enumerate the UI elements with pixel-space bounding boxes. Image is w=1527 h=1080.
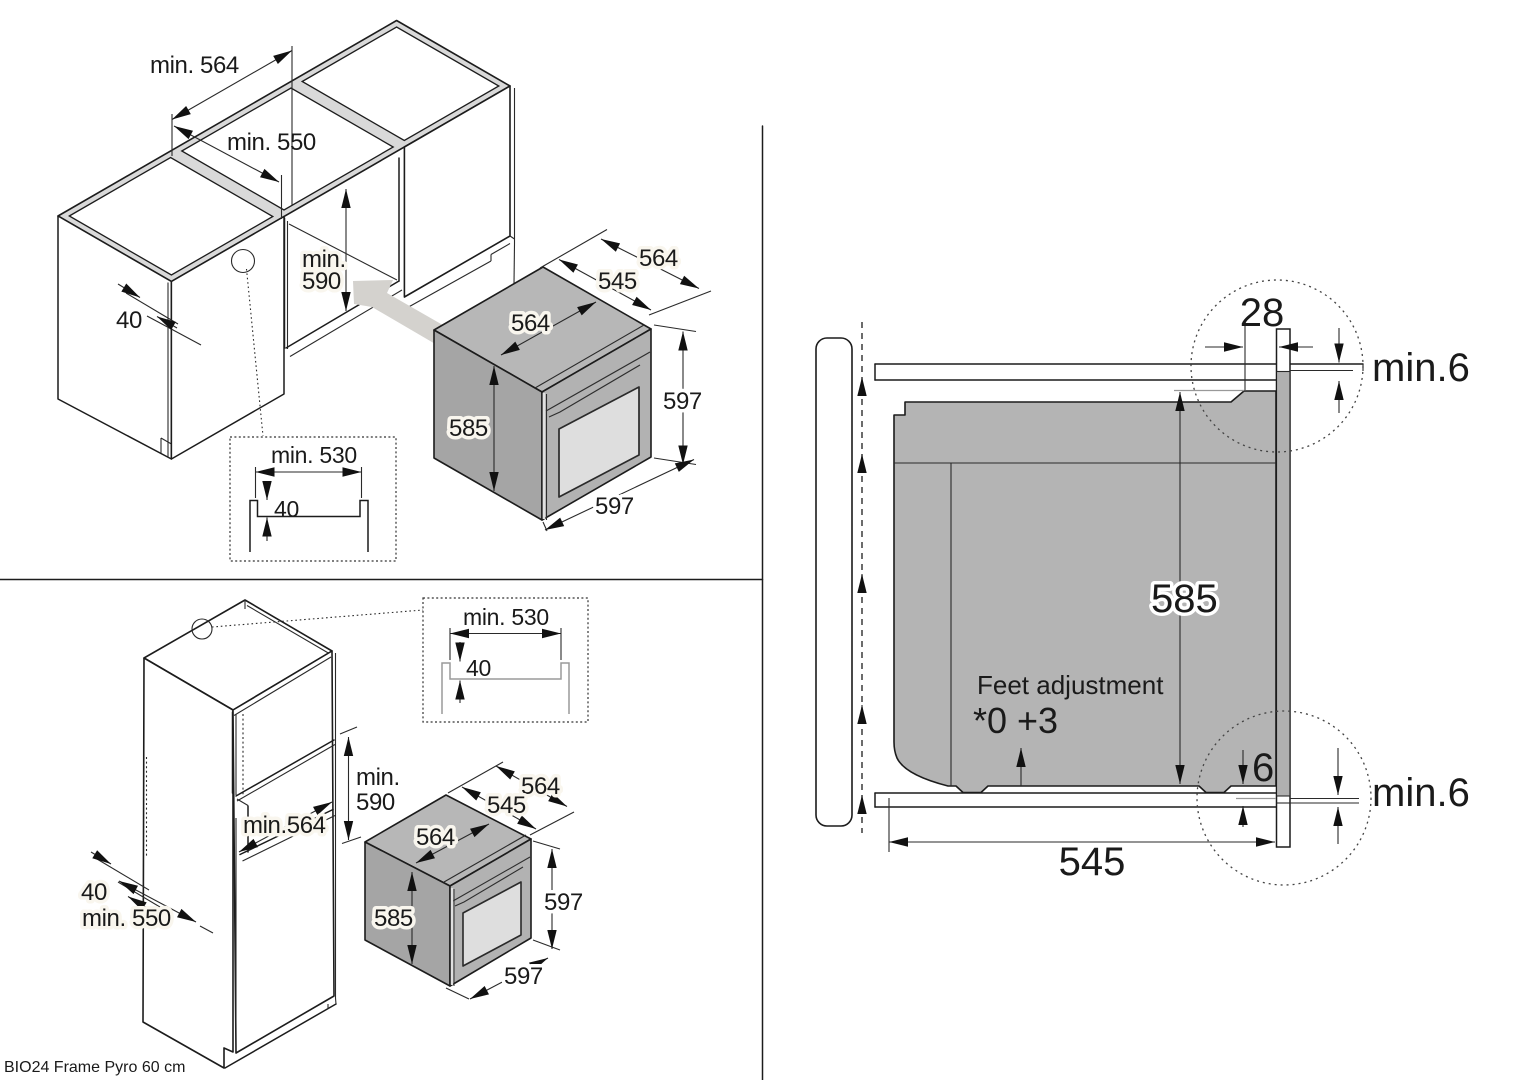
svg-text:597: 597 <box>595 493 634 520</box>
svg-text:597: 597 <box>504 963 543 990</box>
svg-text:Feet adjustment: Feet adjustment <box>977 670 1164 700</box>
svg-text:597: 597 <box>663 388 702 415</box>
svg-text:564: 564 <box>521 773 560 800</box>
svg-text:min.564: min.564 <box>243 812 326 839</box>
svg-text:40: 40 <box>274 496 299 522</box>
svg-text:min. 530: min. 530 <box>271 442 357 468</box>
svg-text:585: 585 <box>1151 577 1218 621</box>
svg-text:28: 28 <box>1240 291 1285 335</box>
svg-text:BIO24 Frame Pyro 60 cm: BIO24 Frame Pyro 60 cm <box>4 1059 185 1076</box>
svg-text:6: 6 <box>1252 746 1274 790</box>
svg-text:min.6: min.6 <box>1372 771 1470 815</box>
svg-text:min. 550: min. 550 <box>82 905 171 932</box>
svg-text:564: 564 <box>511 310 550 337</box>
svg-text:min. 530: min. 530 <box>463 604 549 630</box>
svg-text:min.6: min.6 <box>1372 346 1470 390</box>
svg-text:585: 585 <box>449 415 488 442</box>
svg-text:564: 564 <box>639 245 678 272</box>
svg-text:585: 585 <box>374 905 413 932</box>
svg-text:min. 550: min. 550 <box>227 129 316 156</box>
svg-text:545: 545 <box>1059 840 1126 884</box>
svg-text:min.: min. <box>356 764 400 791</box>
svg-text:40: 40 <box>116 307 142 334</box>
svg-text:40: 40 <box>466 655 491 681</box>
svg-text:545: 545 <box>487 792 526 819</box>
svg-text:590: 590 <box>302 268 341 295</box>
svg-text:564: 564 <box>416 824 455 851</box>
svg-text:min. 564: min. 564 <box>150 52 239 79</box>
svg-text:545: 545 <box>598 268 637 295</box>
svg-text:*0 +3: *0 +3 <box>973 700 1058 741</box>
svg-text:597: 597 <box>544 889 583 916</box>
svg-text:40: 40 <box>81 879 107 906</box>
svg-text:590: 590 <box>356 789 395 816</box>
